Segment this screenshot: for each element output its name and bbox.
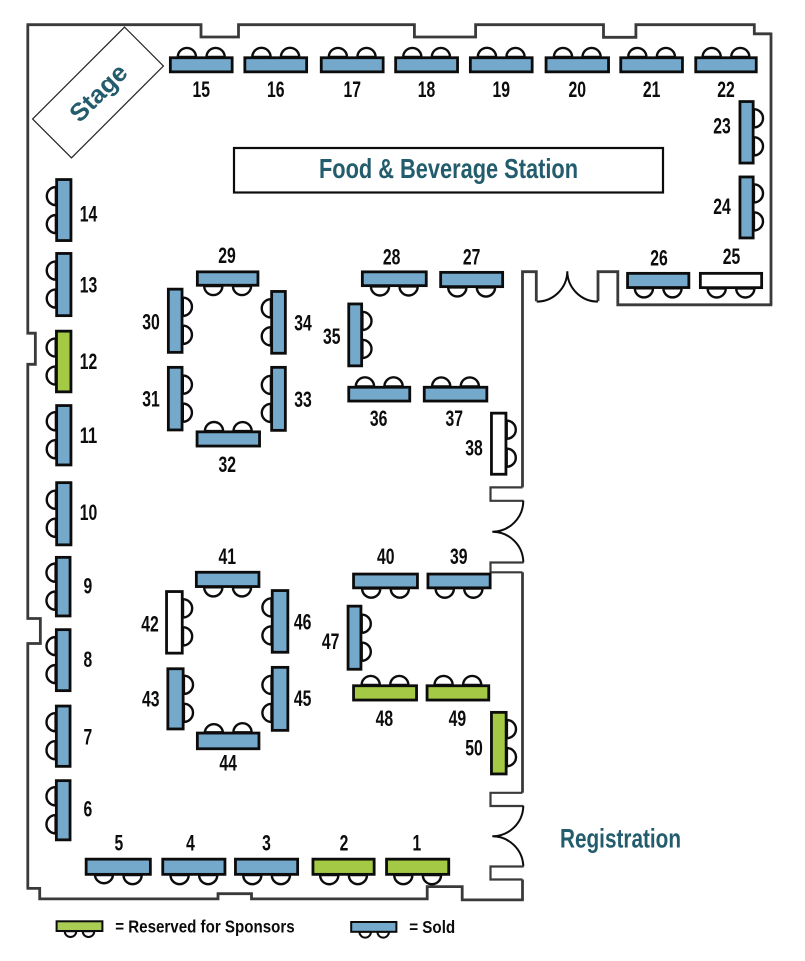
svg-text:12: 12: [80, 349, 98, 374]
svg-text:14: 14: [80, 202, 98, 227]
svg-text:24: 24: [713, 194, 731, 219]
svg-text:50: 50: [465, 736, 483, 761]
svg-text:49: 49: [449, 706, 467, 731]
svg-text:42: 42: [141, 612, 159, 637]
svg-text:18: 18: [418, 77, 436, 102]
svg-text:10: 10: [80, 500, 98, 525]
svg-text:15: 15: [192, 77, 210, 102]
svg-text:35: 35: [323, 324, 341, 349]
svg-text:29: 29: [218, 243, 236, 268]
svg-text:25: 25: [723, 244, 741, 269]
svg-text:37: 37: [445, 406, 463, 431]
svg-text:= Reserved for Sponsors: = Reserved for Sponsors: [115, 917, 295, 937]
svg-text:5: 5: [114, 830, 123, 855]
svg-text:16: 16: [267, 77, 285, 102]
svg-text:7: 7: [83, 725, 92, 750]
svg-text:20: 20: [569, 77, 587, 102]
svg-text:28: 28: [383, 245, 401, 270]
svg-text:8: 8: [83, 647, 92, 672]
svg-text:9: 9: [83, 574, 92, 599]
svg-text:17: 17: [343, 77, 361, 102]
svg-text:26: 26: [650, 246, 668, 271]
svg-text:27: 27: [463, 245, 481, 270]
svg-text:= Sold: = Sold: [409, 917, 455, 937]
svg-text:30: 30: [142, 310, 160, 335]
svg-text:48: 48: [376, 706, 394, 731]
svg-text:45: 45: [294, 686, 312, 711]
svg-text:Registration: Registration: [560, 823, 681, 853]
svg-text:34: 34: [294, 311, 312, 336]
svg-text:19: 19: [492, 77, 510, 102]
svg-text:43: 43: [142, 687, 160, 712]
svg-text:3: 3: [262, 830, 271, 855]
svg-text:22: 22: [717, 77, 735, 102]
svg-text:2: 2: [340, 830, 349, 855]
svg-text:1: 1: [412, 830, 421, 855]
svg-text:6: 6: [83, 797, 92, 822]
svg-text:44: 44: [219, 751, 237, 776]
svg-text:40: 40: [377, 544, 395, 569]
svg-text:46: 46: [294, 610, 312, 635]
svg-text:38: 38: [465, 436, 483, 461]
svg-text:36: 36: [370, 406, 388, 431]
svg-text:11: 11: [80, 423, 98, 448]
svg-text:31: 31: [142, 387, 160, 412]
svg-text:32: 32: [219, 452, 237, 477]
svg-text:23: 23: [713, 114, 731, 139]
svg-text:13: 13: [80, 273, 98, 298]
svg-text:Food & Beverage Station: Food & Beverage Station: [319, 153, 578, 184]
svg-text:47: 47: [322, 629, 340, 654]
svg-text:39: 39: [450, 544, 468, 569]
svg-text:4: 4: [186, 830, 195, 855]
svg-text:41: 41: [218, 544, 236, 569]
svg-text:21: 21: [643, 77, 661, 102]
svg-text:33: 33: [294, 387, 312, 412]
